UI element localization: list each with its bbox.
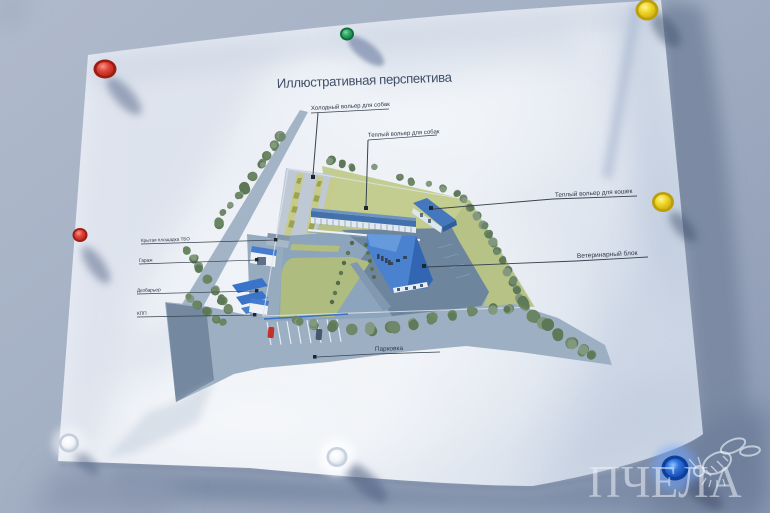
svg-text:Дезбарьер: Дезбарьер — [137, 287, 161, 294]
svg-text:Парковка: Парковка — [375, 345, 404, 353]
svg-text:ПЧЕЛА: ПЧЕЛА — [588, 457, 742, 507]
svg-text:Гараж: Гараж — [139, 258, 154, 264]
svg-text:КПП: КПП — [137, 311, 147, 317]
